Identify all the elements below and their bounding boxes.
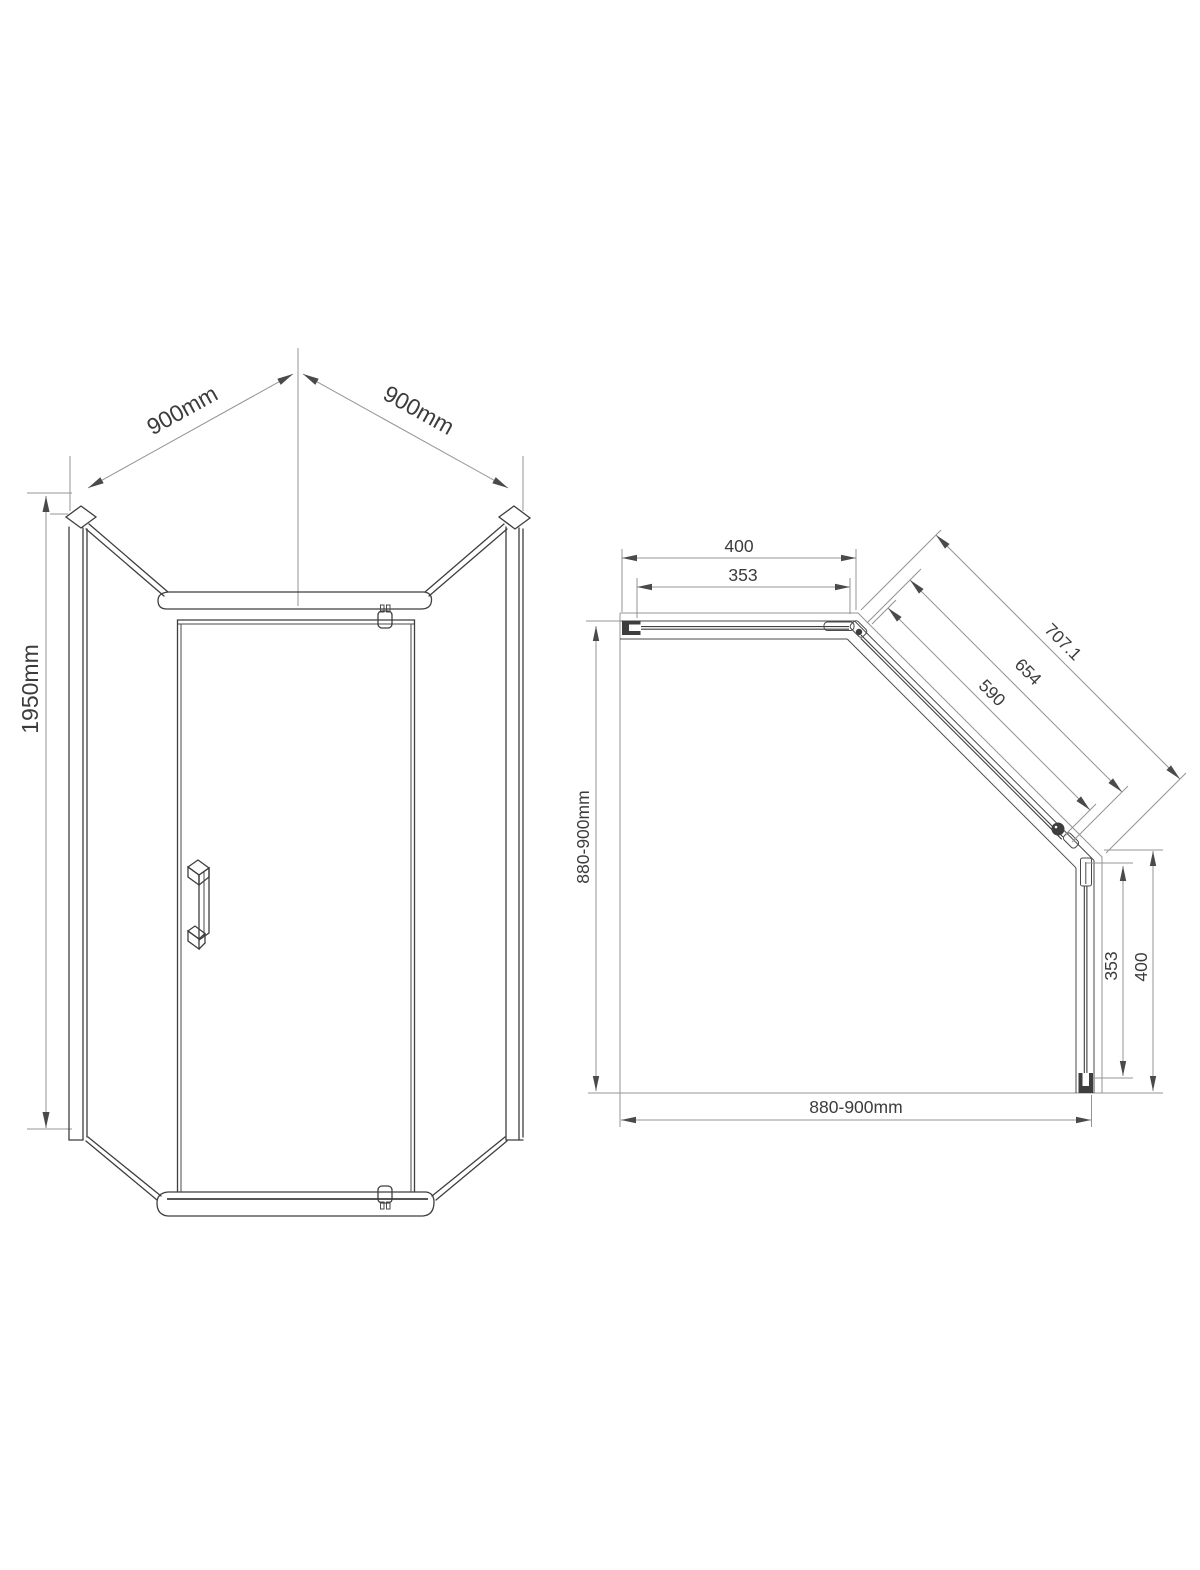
front-dim-width-left-label: 900mm (142, 380, 222, 440)
plan-diagonal-door (847, 619, 1094, 867)
plan-dim-bottom: 880-900mm (621, 1095, 1092, 1127)
wall-profile-right (499, 506, 530, 1140)
wall-profile-left (66, 506, 96, 1140)
plan-dim-left-label: 880-900mm (573, 790, 593, 883)
front-dim-width-right: 900mm (303, 374, 508, 488)
plan-dim-diag-outer-label: 707.1 (1041, 619, 1086, 664)
plan-dim-right-outer-label: 400 (1131, 952, 1151, 981)
wall-bracket-bottom-right-icon (1079, 1073, 1094, 1093)
side-panel-left (86, 524, 168, 1200)
front-dim-height: 1950mm (17, 493, 72, 1129)
plan-dim-right-inner: 353 (1086, 863, 1133, 1078)
wall-bracket-top-left-icon (622, 621, 641, 636)
side-panel-right (425, 524, 507, 1200)
front-dim-height-label: 1950mm (17, 644, 43, 733)
plan-dim-left: 880-900mm (573, 621, 621, 1091)
plan-room-walls (588, 613, 1163, 1127)
plan-dim-diag-inner-label: 590 (975, 675, 1010, 710)
door-knob-icon (1052, 823, 1065, 836)
door-handle (188, 860, 209, 949)
plan-dim-top-outer-label: 400 (724, 536, 753, 556)
door-panel (178, 620, 415, 1192)
front-view: 900mm 900mm 1950mm (17, 348, 530, 1216)
plan-dim-right-inner-label: 353 (1101, 951, 1121, 980)
front-dim-width-left: 900mm (88, 374, 293, 488)
drawing-canvas: 900mm 900mm 1950mm (0, 0, 1200, 1570)
door-hinge-bottom-icon (378, 1186, 392, 1209)
plan-dim-diag-outer: 707.1 (861, 530, 1186, 853)
door-pivot-bottom-icon (1062, 832, 1080, 850)
front-dim-width-right-label: 900mm (379, 380, 459, 440)
plan-top-fixed-panel (620, 621, 855, 640)
plan-view: 400 353 707.1 654 (573, 530, 1186, 1127)
plan-dim-top-inner: 353 (637, 565, 850, 618)
technical-drawing: 900mm 900mm 1950mm (0, 0, 1200, 1570)
plan-dim-bottom-label: 880-900mm (809, 1097, 902, 1117)
front-extension-lines (50, 348, 523, 606)
plan-dim-top-inner-label: 353 (728, 565, 757, 585)
plan-dim-diag-mid-label: 654 (1011, 654, 1046, 689)
plan-right-fixed-panel (1076, 858, 1094, 1093)
